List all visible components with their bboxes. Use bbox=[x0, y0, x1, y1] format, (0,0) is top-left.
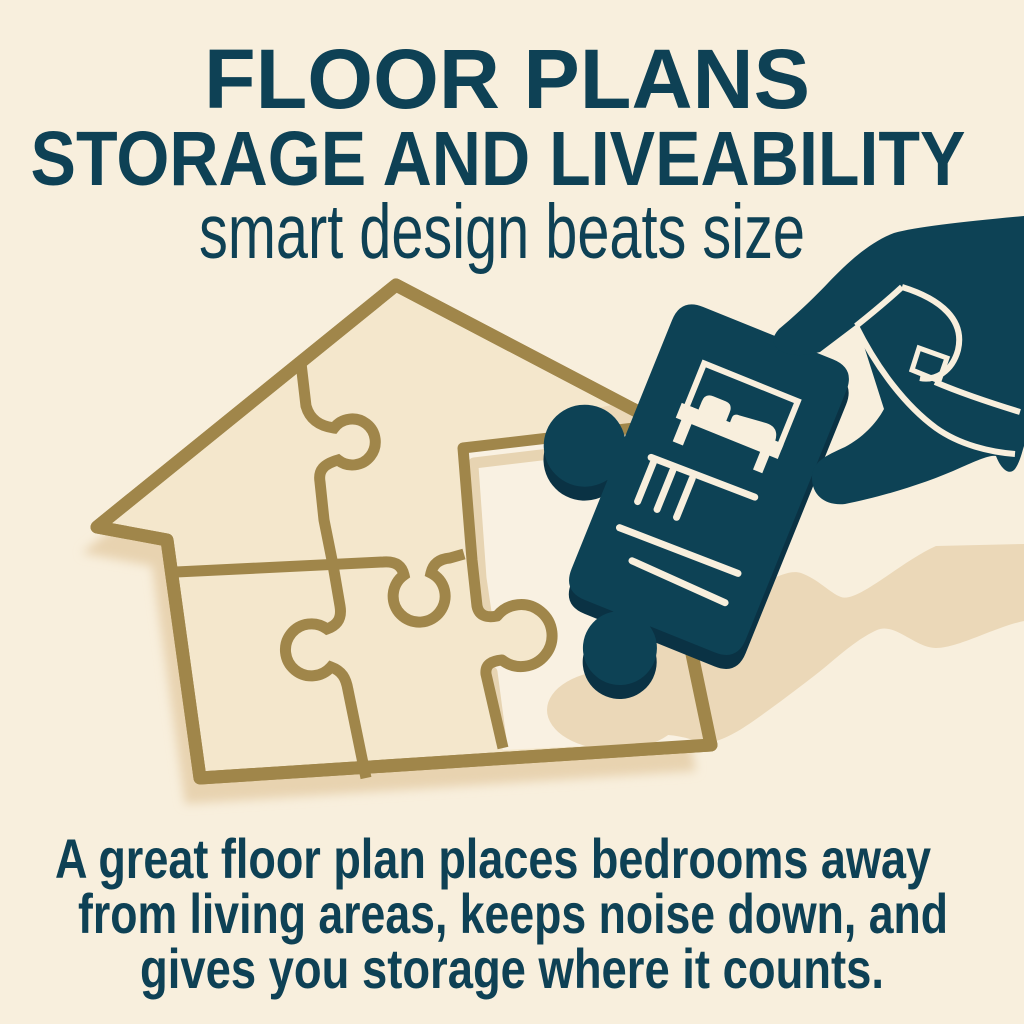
svg-text:from living areas, keeps noise: from living areas, keeps noise down, and bbox=[78, 882, 948, 945]
svg-text:smart design beats size: smart design beats size bbox=[199, 189, 805, 275]
svg-text:A great floor plan places bedr: A great floor plan places bedrooms away bbox=[55, 827, 931, 890]
svg-text:gives you storage where it cou: gives you storage where it counts. bbox=[140, 937, 884, 1000]
svg-text:FLOOR PLANS: FLOOR PLANS bbox=[204, 32, 810, 126]
